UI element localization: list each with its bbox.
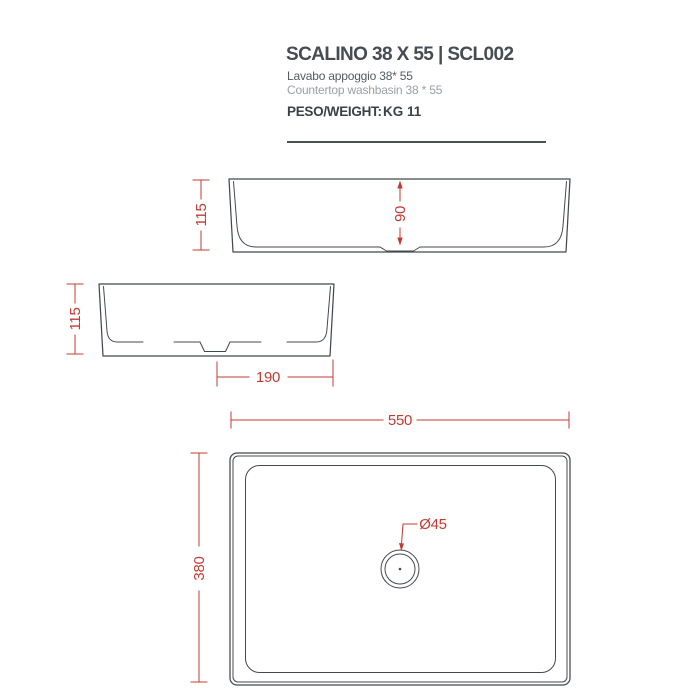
top-width-label: 550 <box>388 412 412 429</box>
front-height-label: 115 <box>193 203 210 226</box>
side-drain-offset-label: 190 <box>256 369 280 386</box>
technical-drawing: 115 90 115 <box>0 0 700 700</box>
top-width-dimension: 550 <box>231 412 569 429</box>
side-height-dimension: 115 <box>67 284 84 354</box>
side-elevation-view: 115 190 <box>67 284 334 386</box>
top-depth-label: 380 <box>191 556 208 580</box>
arrow-up-icon <box>397 181 402 189</box>
front-elevation-view: 115 90 <box>193 179 570 252</box>
top-plan-view: 550 380 Ø45 <box>191 412 570 685</box>
front-basin-depth-dimension: 90 <box>392 181 409 246</box>
side-inner-wall-left <box>104 287 144 343</box>
side-height-label: 115 <box>67 307 84 330</box>
side-outer-outline <box>99 284 334 356</box>
front-basin-depth-label: 90 <box>392 206 409 222</box>
drain-diameter-label: Ø45 <box>419 516 446 533</box>
drain-diameter-callout: Ø45 <box>399 516 447 551</box>
drain <box>381 550 419 588</box>
side-inner-wall-right <box>287 287 331 343</box>
arrow-down-icon <box>397 238 402 246</box>
drain-center-mark <box>399 568 402 571</box>
side-drain-recess <box>200 342 230 352</box>
leader-line <box>402 524 418 544</box>
front-height-dimension: 115 <box>193 180 210 250</box>
side-drain-offset-dimension: 190 <box>217 360 333 386</box>
top-depth-dimension: 380 <box>191 453 208 682</box>
